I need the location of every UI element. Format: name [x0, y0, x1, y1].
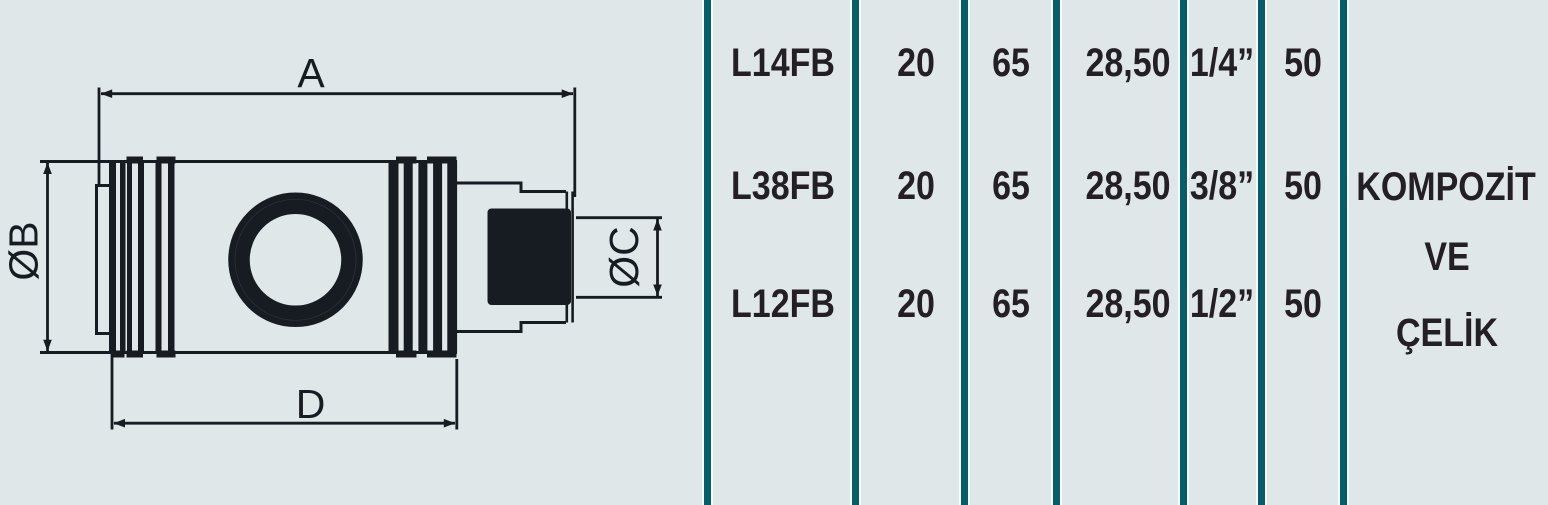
svg-text:ØC: ØC [601, 226, 647, 288]
svg-text:A: A [297, 50, 325, 96]
svg-text:ØB: ØB [1, 221, 47, 280]
svg-text:D: D [296, 381, 326, 427]
